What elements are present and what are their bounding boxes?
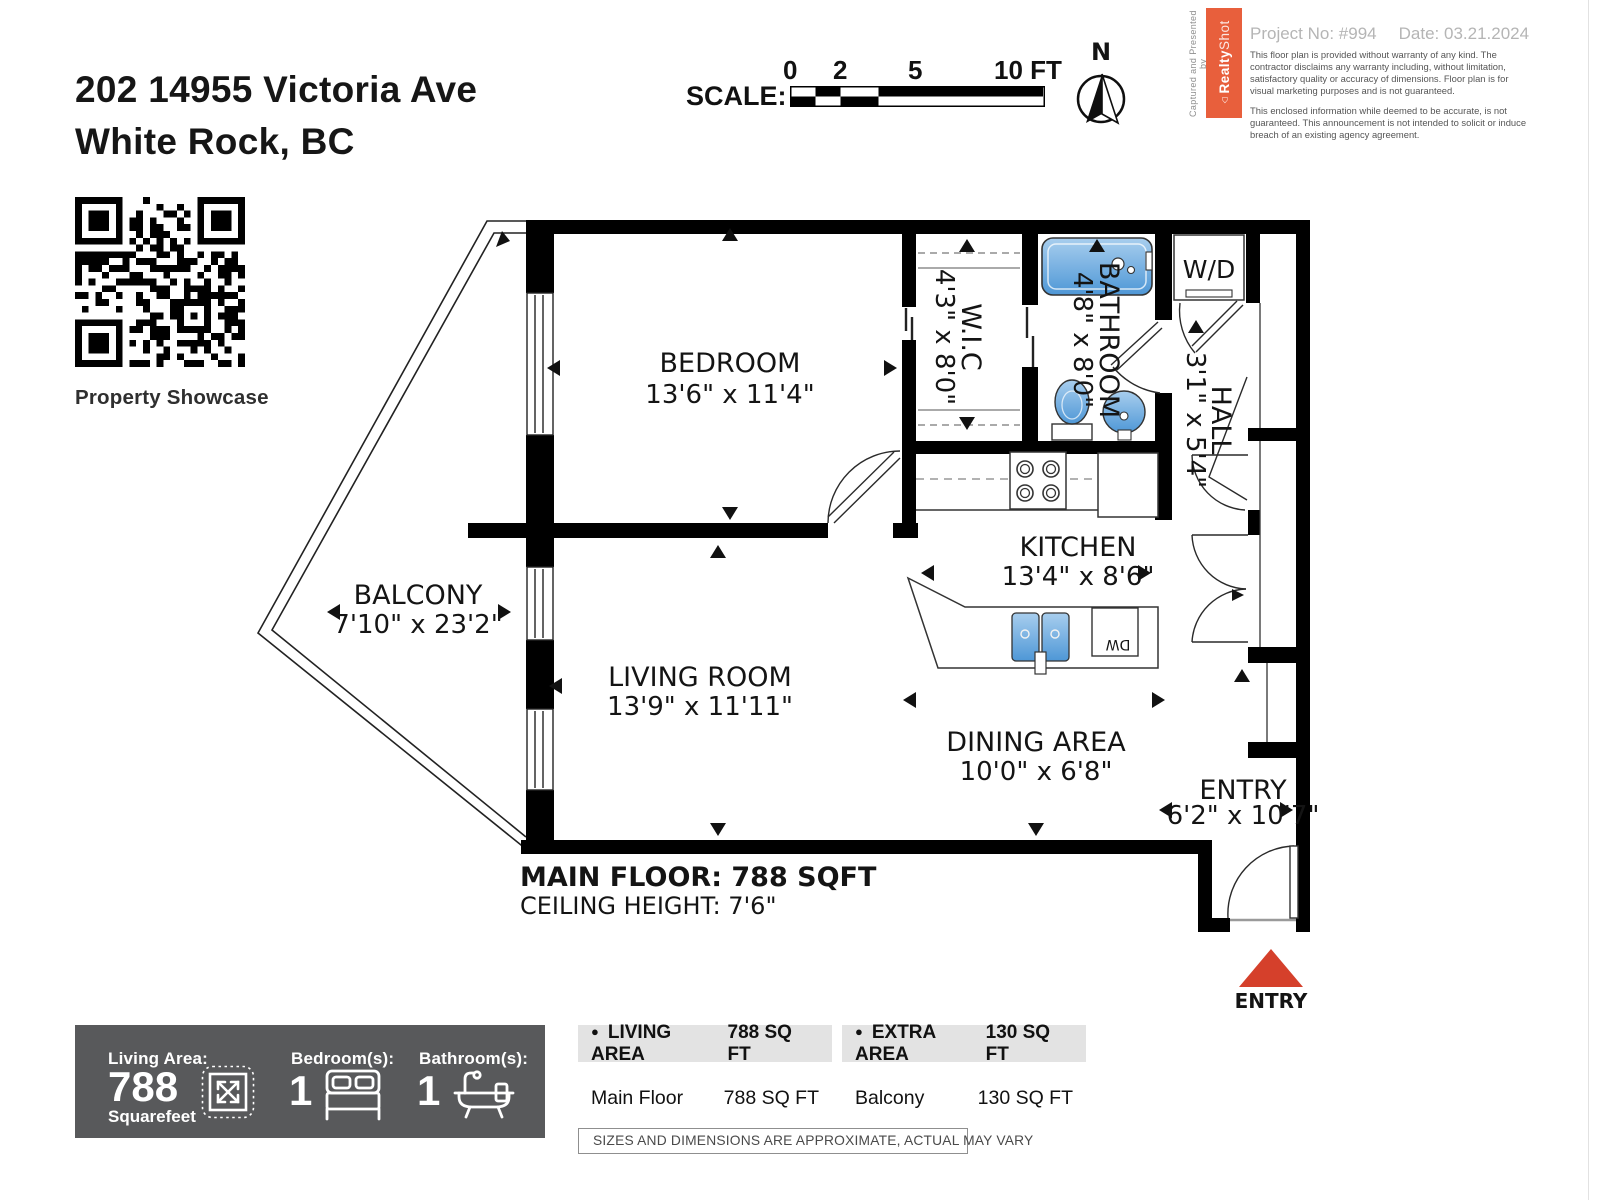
living-row-label: Main Floor [591, 1087, 683, 1110]
room-dims-bathroom: 4'8" x 8'0" [1067, 272, 1097, 408]
bedrooms-value: 1 [289, 1067, 312, 1115]
closet-partitions [1260, 303, 1267, 742]
extra-row-value: 130 SQ FT [978, 1087, 1073, 1110]
living-area-unit: Squarefeet [108, 1107, 196, 1127]
room-label-balcony: BALCONY [354, 580, 483, 611]
room-dims-kitchen: 13'4" x 8'6" [1002, 562, 1155, 592]
ceiling-height: CEILING HEIGHT: 7'6" [520, 892, 776, 920]
room-dims-entry: 6'2" x 10'7" [1167, 801, 1320, 831]
room-label-bedroom: BEDROOM [660, 348, 801, 379]
table-row: Balcony 130 SQ FT [842, 1087, 1086, 1110]
room-dims-bedroom: 13'6" x 11'4" [645, 380, 814, 410]
bedrooms-label: Bedroom(s): [291, 1049, 394, 1069]
dishwasher: DW [1092, 608, 1138, 656]
dishwasher-label: DW [1106, 636, 1131, 652]
room-dims-dining: 10'0" x 6'8" [960, 757, 1113, 787]
room-label-living: LIVING ROOM [608, 662, 792, 693]
table-extra-header: ●EXTRA AREA 130 SQ FT [842, 1025, 1086, 1062]
entry-marker-label: ENTRY [1235, 989, 1308, 1013]
floor-plan: DW W/D [0, 0, 1600, 1200]
living-header-value: 788 SQ FT [728, 1022, 820, 1066]
room-dims-wic: 4'3" x 8'0" [929, 269, 959, 405]
extra-header-label: EXTRA AREA [855, 1022, 936, 1065]
bathtub-icon [451, 1067, 517, 1123]
extra-row-label: Balcony [855, 1087, 924, 1110]
entry-door-leaf [1290, 846, 1298, 918]
bathrooms-value: 1 [417, 1067, 440, 1115]
table-extra-area: ●EXTRA AREA 130 SQ FT Balcony 130 SQ FT [842, 1025, 1086, 1110]
room-dims-hall: 3'1" x 5'4" [1180, 352, 1210, 488]
stove [1010, 452, 1066, 509]
fridge [1098, 453, 1158, 517]
room-label-dining: DINING AREA [946, 727, 1126, 758]
room-label-kitchen: KITCHEN [1020, 532, 1137, 563]
disclaimer-note: SIZES AND DIMENSIONS ARE APPROXIMATE, AC… [578, 1128, 968, 1154]
extra-header-value: 130 SQ FT [986, 1022, 1073, 1066]
table-row: Main Floor 788 SQ FT [578, 1087, 832, 1110]
living-area-value: 788 [108, 1063, 178, 1111]
table-living-area: ●LIVING AREA 788 SQ FT Main Floor 788 SQ… [578, 1025, 832, 1110]
bullet-icon: ● [591, 1024, 599, 1039]
table-living-header: ●LIVING AREA 788 SQ FT [578, 1025, 832, 1062]
expand-icon [201, 1065, 255, 1119]
entry-arrow: ENTRY [1235, 949, 1308, 1013]
washer-dryer: W/D [1174, 235, 1244, 300]
living-row-value: 788 SQ FT [724, 1087, 819, 1110]
bullet-icon: ● [855, 1024, 863, 1039]
main-floor-area: MAIN FLOOR: 788 SQFT [520, 862, 877, 893]
bed-icon [321, 1069, 385, 1123]
faucet [1035, 652, 1046, 674]
room-dims-living: 13'9" x 11'11" [607, 692, 793, 722]
living-header-label: LIVING AREA [591, 1022, 671, 1065]
wd-label: W/D [1183, 255, 1235, 284]
bathrooms-label: Bathroom(s): [419, 1049, 528, 1069]
summary-bar: Living Area: 788 Squarefeet Bedroom(s): … [75, 1025, 545, 1138]
room-dims-balcony: 7'10" x 23'2" [333, 610, 502, 640]
